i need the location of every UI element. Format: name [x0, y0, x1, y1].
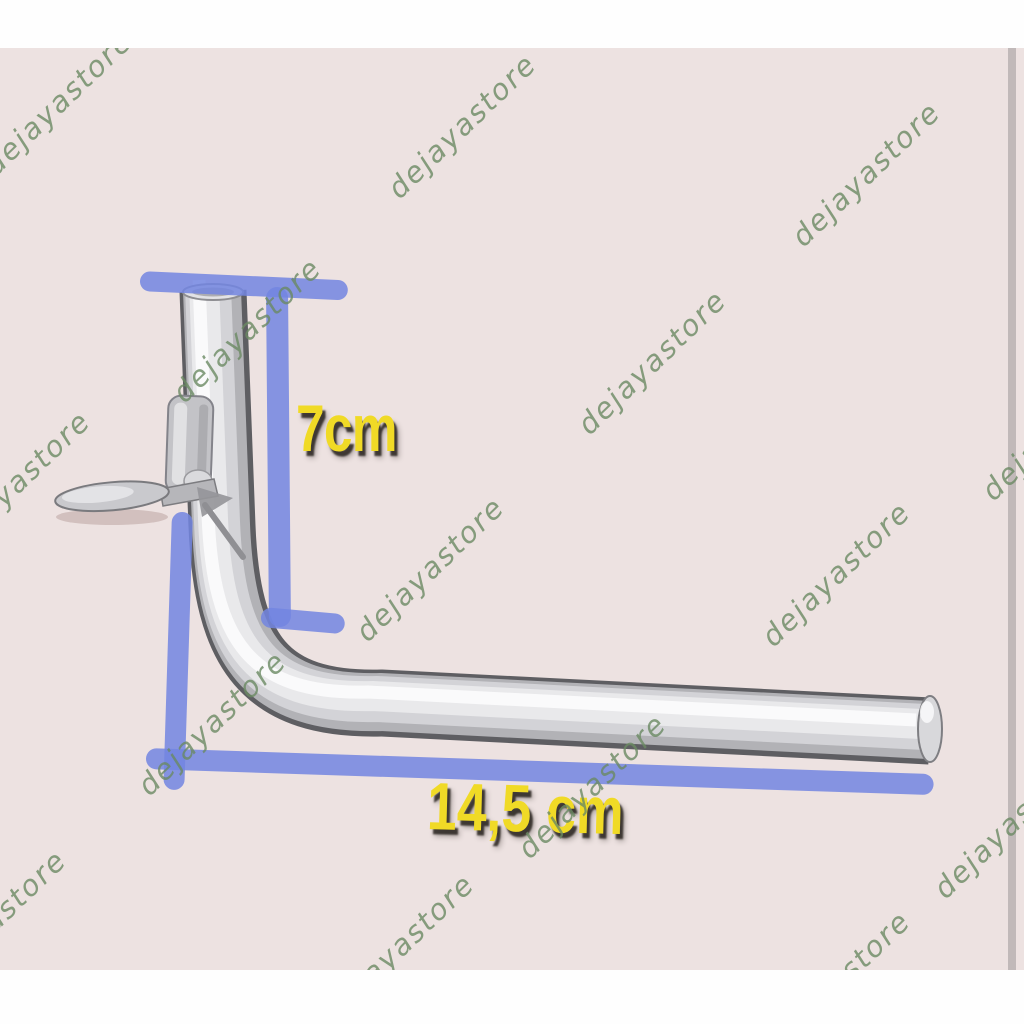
- product-photo: 7cm 14,5 cm dejayastoredejayastoredejaya…: [0, 0, 1024, 1024]
- chrome-pipe-photo: [0, 0, 1024, 1024]
- pipe-body-light: [208, 287, 925, 727]
- pipe-end-highlight: [920, 701, 934, 723]
- dimension-line-vertical-7cm: [266, 287, 291, 627]
- top-letterbox-bar: [0, 0, 1024, 48]
- pipe-body-lighter: [204, 284, 921, 724]
- pipe-highlight: [199, 280, 916, 720]
- pipe-outline: [213, 291, 930, 731]
- height-dimension-label: 7cm: [296, 395, 397, 461]
- bottom-letterbox-bar: [0, 970, 1024, 1024]
- clip-blade: [54, 477, 170, 515]
- width-dimension-label: 14,5 cm: [426, 773, 624, 845]
- clip-shadow: [56, 509, 168, 525]
